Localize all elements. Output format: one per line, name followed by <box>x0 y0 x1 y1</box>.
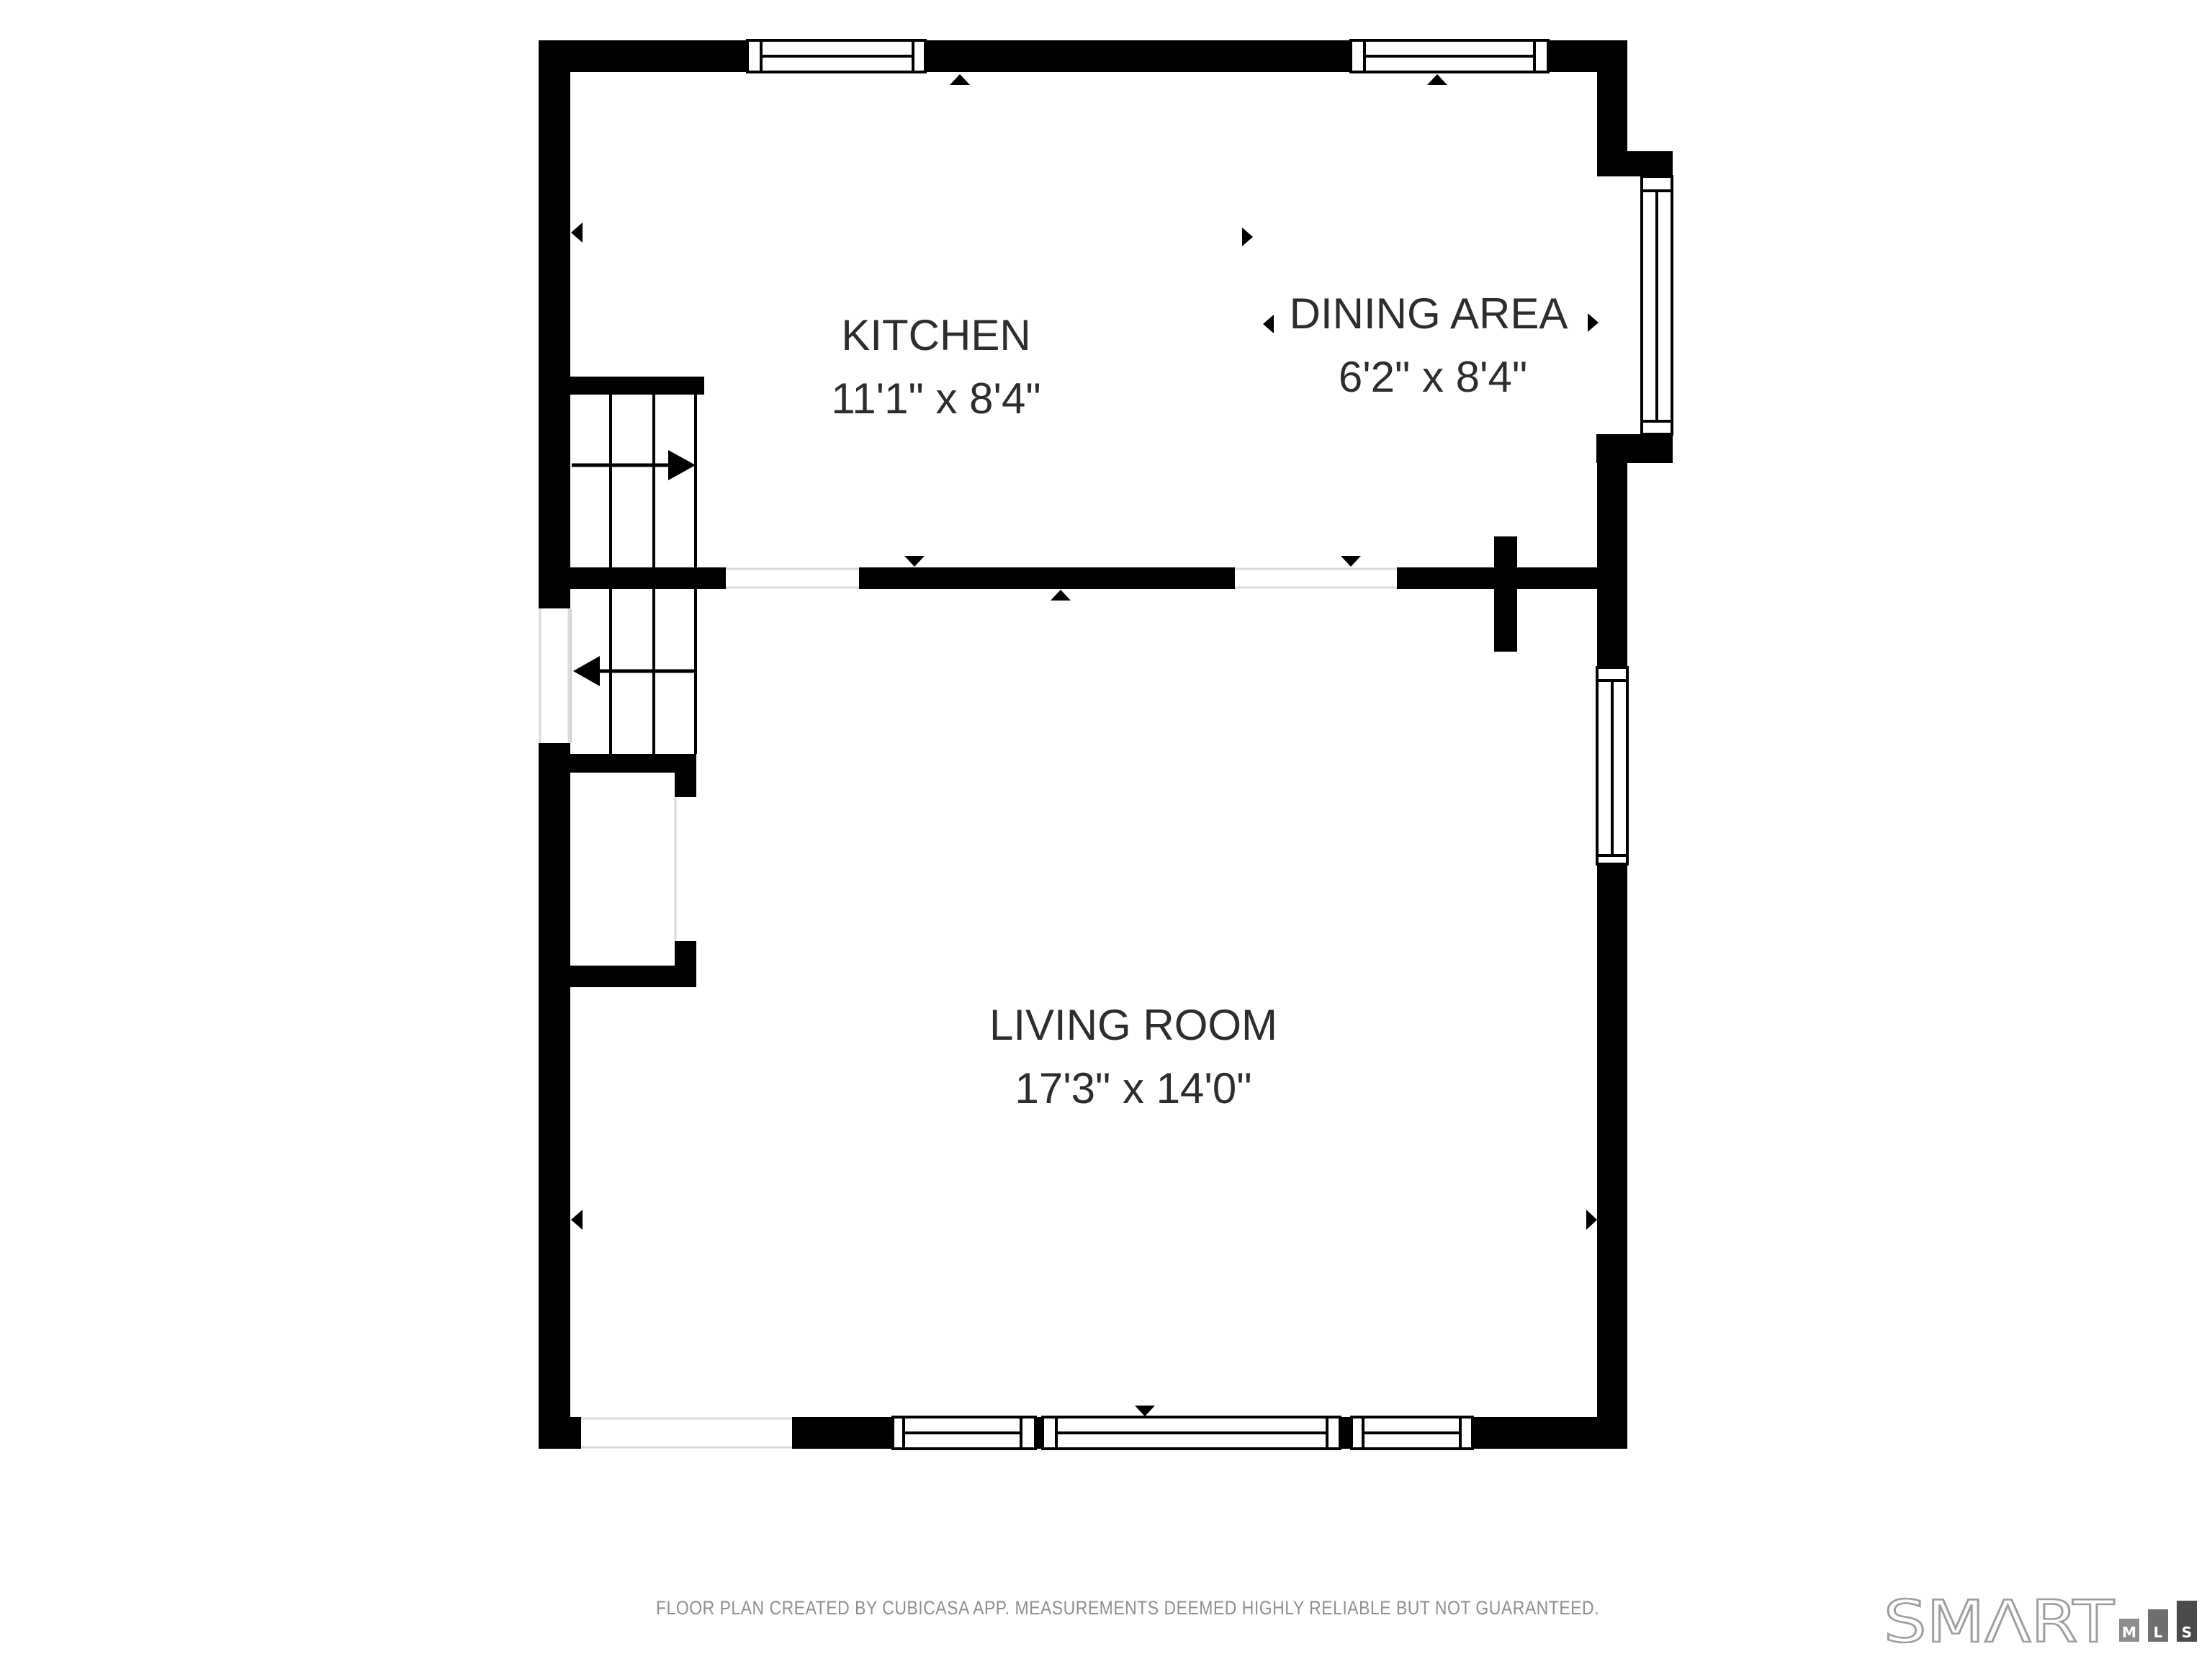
marker-divider-door1 <box>904 556 925 567</box>
wall-bottom-mullion-2 <box>1340 1417 1352 1449</box>
wall-right-middle <box>1597 463 1627 667</box>
room-labels: KITCHEN 11'1" x 8'4" DINING AREA 6'2" x … <box>831 289 1568 1112</box>
marker-dining-top <box>1427 74 1447 85</box>
windows <box>747 40 1672 1449</box>
smart-mls-logo: SMΛRT M L S <box>1884 1588 2197 1655</box>
marker-dining-left <box>1263 315 1274 333</box>
kitchen-dimensions: 11'1" x 8'4" <box>831 374 1040 423</box>
measurement-markers <box>571 74 1599 1416</box>
wall-right-lower <box>1597 864 1627 1449</box>
marker-living-top <box>1051 590 1071 601</box>
kitchen-label: KITCHEN <box>841 311 1030 359</box>
living-room-label: LIVING ROOM <box>989 1001 1277 1049</box>
marker-living-right <box>1586 1210 1597 1230</box>
walls <box>539 40 1673 1449</box>
doorway-divider-2 <box>1235 569 1397 588</box>
divider-cross-stub <box>1494 536 1517 652</box>
dining-area-dimensions: 6'2" x 8'4" <box>1339 353 1527 401</box>
bay-stub-bottom <box>1596 434 1673 463</box>
logo-block-l-letter: L <box>2154 1624 2163 1641</box>
window-dining-bay <box>1642 176 1672 434</box>
marker-kitchen-top <box>950 74 970 85</box>
divider-wall-2 <box>859 567 1235 589</box>
wall-left-upper <box>539 40 570 608</box>
wall-right-upper <box>1597 72 1627 176</box>
floor-plan-page: KITCHEN 11'1" x 8'4" DINING AREA 6'2" x … <box>0 0 2212 1659</box>
window-living-right <box>1597 667 1627 864</box>
marker-divider-door2 <box>1341 556 1361 567</box>
marker-living-left <box>571 1210 583 1230</box>
door-bottom-entry <box>581 1419 792 1447</box>
stair-top-stub <box>569 377 704 395</box>
marker-dining-right <box>1588 313 1599 332</box>
window-dining-top <box>1351 40 1548 72</box>
living-room-dimensions: 17'3" x 14'0" <box>1015 1064 1251 1112</box>
stair-arrow-up-flight <box>572 450 696 480</box>
bay-stub-top <box>1627 151 1673 176</box>
door-left-entry <box>540 608 569 743</box>
closet-side-stub <box>675 941 696 966</box>
marker-kitchen-right <box>1242 228 1253 246</box>
window-kitchen-top <box>747 40 925 72</box>
wall-left-lower <box>539 743 570 1449</box>
marker-living-bottom <box>1135 1406 1155 1416</box>
footer-disclaimer: FLOOR PLAN CREATED BY CUBICASA APP. MEAS… <box>656 1597 1599 1619</box>
window-living-bottom-2 <box>1043 1417 1340 1449</box>
divider-wall-1 <box>539 567 726 589</box>
stair-bottom-stub <box>675 773 696 797</box>
stair-bottom-wall <box>539 754 696 773</box>
floor-plan-diagram: KITCHEN 11'1" x 8'4" DINING AREA 6'2" x … <box>0 0 2212 1659</box>
wall-bottom-1 <box>539 1417 581 1449</box>
dining-area-label: DINING AREA <box>1290 289 1568 338</box>
window-living-bottom-3 <box>1352 1417 1473 1449</box>
wall-bottom-2 <box>792 1417 893 1449</box>
logo-block-s-letter: S <box>2182 1624 2192 1641</box>
window-living-bottom-1 <box>893 1417 1035 1449</box>
doorway-divider-1 <box>726 569 859 588</box>
closet-bottom-wall <box>539 966 696 987</box>
marker-kitchen-left <box>571 222 583 243</box>
logo-brand-text: SMΛRT <box>1884 1588 2115 1655</box>
stair-arrow-down-flight <box>573 656 694 686</box>
logo-block-m-letter: M <box>2122 1624 2136 1641</box>
